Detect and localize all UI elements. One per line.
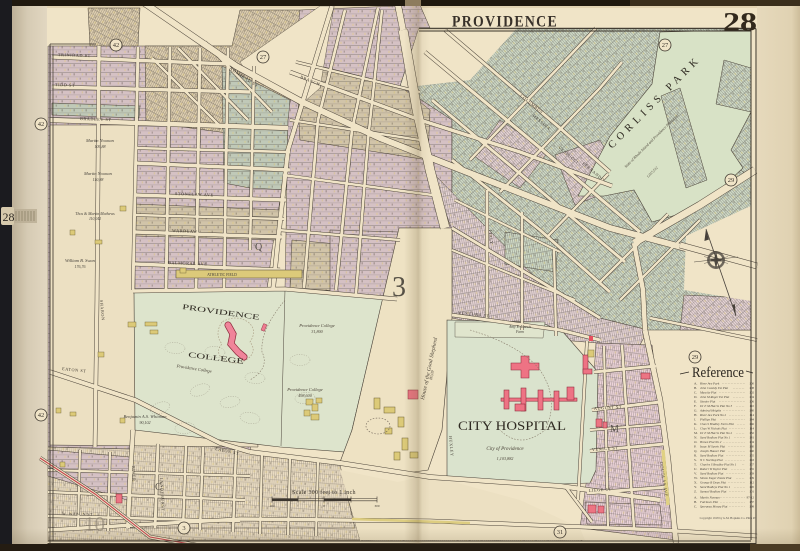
svg-text:TIDD ST: TIDD ST: [55, 82, 75, 88]
svg-text:28: 28: [3, 210, 15, 224]
svg-text:John M Roger Est Plat: John M Roger Est Plat: [700, 395, 729, 399]
svg-text:104: 104: [749, 395, 754, 399]
svg-text:Farm: Farm: [515, 330, 524, 334]
svg-text:William B. Swan: William B. Swan: [65, 258, 96, 263]
svg-text:Martin Noonan: Martin Noonan: [83, 171, 113, 176]
svg-text:27: 27: [662, 42, 669, 49]
svg-text:42: 42: [113, 42, 120, 49]
svg-text:C.: C.: [694, 391, 697, 395]
svg-text:29: 29: [692, 354, 699, 361]
svg-text:Martin Noonan: Martin Noonan: [85, 138, 115, 143]
svg-text:Thos & Martin Mathews: Thos & Martin Mathews: [75, 211, 115, 216]
svg-text:ATHLETIC FIELD: ATHLETIC FIELD: [207, 273, 237, 277]
svg-text:D.: D.: [694, 395, 697, 399]
svg-text:27: 27: [260, 54, 267, 61]
svg-text:28: 28: [723, 8, 757, 37]
svg-text:42: 42: [38, 121, 45, 128]
svg-text:Q: Q: [255, 242, 263, 253]
svg-text:Providence College: Providence College: [298, 323, 334, 328]
svg-text:Reference: Reference: [692, 365, 744, 381]
svg-text:3: 3: [392, 272, 406, 303]
svg-text:Providence College: Providence College: [286, 387, 322, 392]
svg-text:Maxcity Plat: Maxcity Plat: [699, 391, 716, 395]
svg-text:100: 100: [749, 382, 754, 386]
svg-text:John Cassidy Est Plat: John Cassidy Est Plat: [700, 386, 728, 390]
svg-text:A.: A.: [694, 382, 697, 386]
svg-text:WARDLAW: WARDLAW: [172, 228, 198, 234]
svg-text:Amy E. Harris: Amy E. Harris: [508, 325, 532, 329]
svg-text:PROVIDENCE: PROVIDENCE: [452, 14, 558, 31]
svg-text:29: 29: [728, 177, 735, 184]
svg-text:108: 108: [749, 386, 754, 390]
svg-text:102: 102: [749, 391, 754, 395]
svg-text:River Ave Park: River Ave Park: [699, 382, 720, 386]
svg-text:B.: B.: [694, 386, 697, 390]
